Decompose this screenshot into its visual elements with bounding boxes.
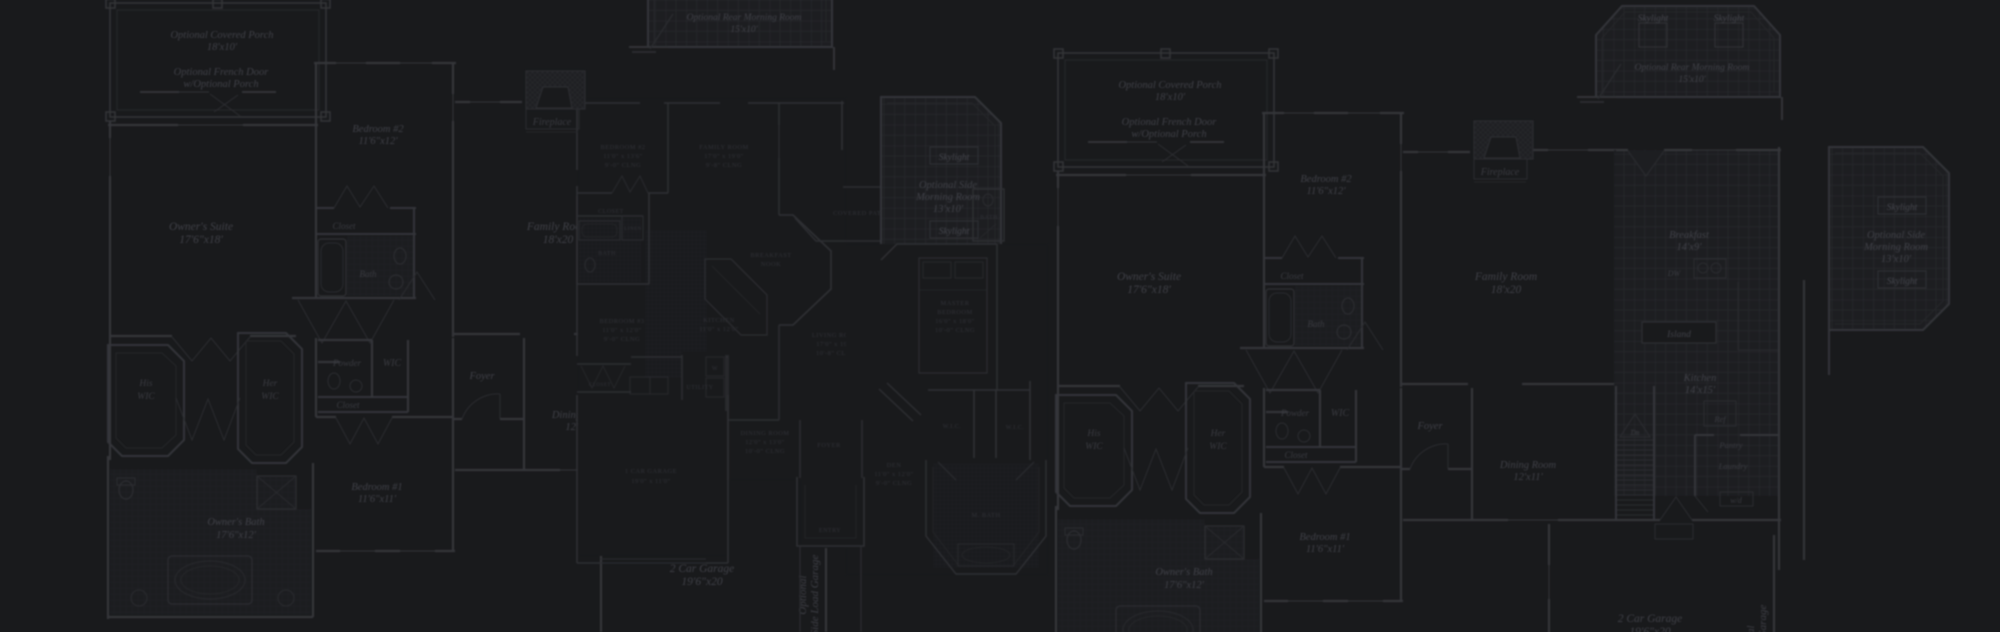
svg-text:BEDROOM #2: BEDROOM #2	[601, 144, 646, 151]
svg-text:DINING ROOM: DINING ROOM	[741, 430, 790, 437]
svg-text:MASTER: MASTER	[941, 300, 970, 307]
svg-text:CLOSET: CLOSET	[589, 383, 611, 388]
svg-text:11'0" x 12'0": 11'0" x 12'0"	[602, 327, 641, 334]
svg-text:FAMILY ROOM: FAMILY ROOM	[699, 144, 748, 151]
svg-text:UTILITY: UTILITY	[686, 385, 713, 391]
svg-text:16'0" x 18'0": 16'0" x 18'0"	[935, 318, 975, 325]
svg-text:12'0" x 13'0": 12'0" x 13'0"	[745, 439, 785, 446]
svg-text:9'-8" CLNG: 9'-8" CLNG	[706, 162, 742, 169]
svg-text:9'-0" CLNG: 9'-0" CLNG	[876, 480, 912, 487]
svg-text:KITCHEN: KITCHEN	[703, 317, 735, 324]
svg-text:BEDROOM: BEDROOM	[937, 309, 972, 316]
svg-text:W.I.C.: W.I.C.	[943, 424, 962, 430]
svg-text:NOOK: NOOK	[761, 261, 781, 268]
svg-text:FOYER: FOYER	[817, 442, 841, 449]
svg-text:17'0" x 19'0": 17'0" x 19'0"	[704, 153, 744, 160]
svg-text:CLOSET: CLOSET	[598, 209, 624, 215]
svg-text:BREAKFAST: BREAKFAST	[750, 252, 791, 259]
svg-text:9'-0" CLNG: 9'-0" CLNG	[605, 162, 641, 169]
svg-text:DEN: DEN	[887, 462, 902, 469]
svg-text:BEDROOM #3: BEDROOM #3	[600, 318, 645, 325]
svg-text:11'0" x 13'6": 11'0" x 13'6"	[603, 153, 642, 160]
svg-text:LINEN: LINEN	[624, 227, 642, 232]
svg-text:9'-0" CLNG: 9'-0" CLNG	[604, 336, 640, 343]
svg-text:10'-0" CLNG: 10'-0" CLNG	[745, 448, 785, 455]
svg-text:M. BATH: M. BATH	[971, 512, 1000, 519]
svg-text:10'-0" CLNG: 10'-0" CLNG	[935, 327, 975, 334]
svg-text:BATH: BATH	[598, 251, 616, 257]
svg-text:W: W	[712, 366, 718, 372]
svg-text:19'0" x 11'0": 19'0" x 11'0"	[631, 478, 670, 485]
svg-text:1 CAR GARAGE: 1 CAR GARAGE	[625, 468, 677, 475]
svg-text:11'0" x 12'0": 11'0" x 12'0"	[874, 471, 913, 478]
svg-text:ENTRY: ENTRY	[819, 528, 841, 534]
svg-text:W.I.C.: W.I.C.	[1006, 425, 1025, 431]
svg-text:BATH: BATH	[980, 215, 998, 221]
